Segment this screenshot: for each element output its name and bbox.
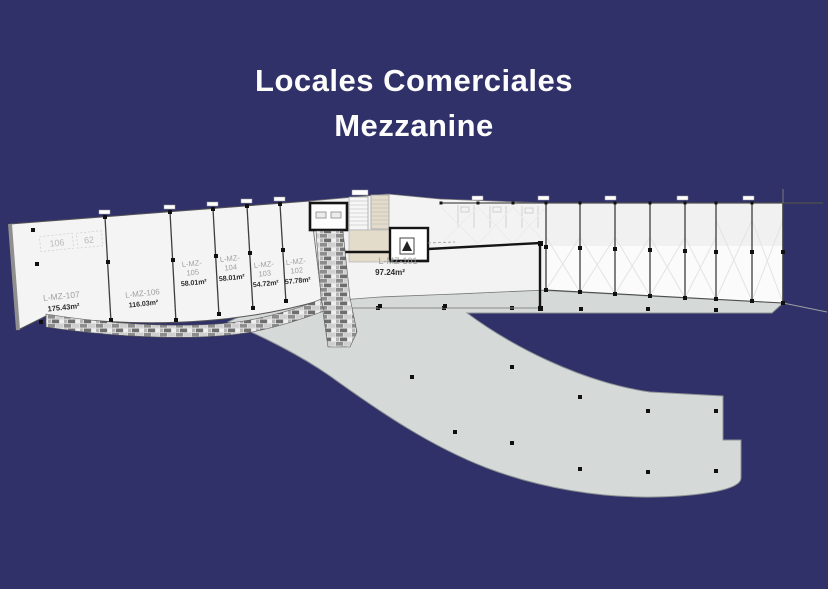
small-label-106: 106	[49, 237, 65, 249]
unit-label: 104	[224, 262, 237, 272]
walkway-shape	[228, 290, 783, 497]
unit-label: 103	[258, 268, 271, 278]
small-label-62: 62	[83, 235, 94, 246]
page: Locales Comerciales Mezzanine	[0, 0, 828, 589]
floor-plan: 106 62 L-MZ-107 175.43m² L-MZ-106 116.03…	[0, 0, 828, 589]
elevator-door-icon	[316, 212, 326, 218]
unit-label: L-MZ-101	[378, 256, 417, 266]
unit-label: 102	[290, 265, 303, 275]
left-unit-block: 106 62 L-MZ-107 175.43m² L-MZ-106 116.03…	[10, 197, 322, 330]
unit-area: 97.24m²	[375, 268, 405, 277]
unit-label: 105	[186, 267, 199, 277]
elevator-door-icon	[331, 212, 341, 218]
walkway-area	[228, 290, 783, 497]
